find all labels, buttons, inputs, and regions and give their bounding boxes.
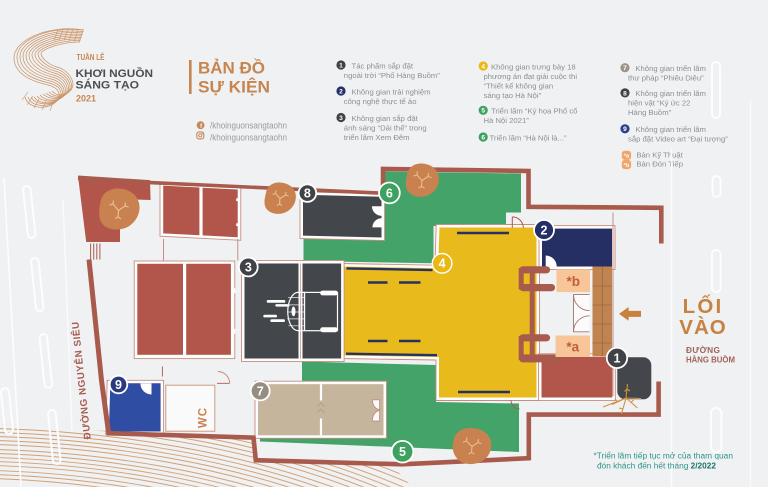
svg-text:*b: *b xyxy=(624,163,630,169)
svg-text:đón khách đến hết tháng 2/2022: đón khách đến hết tháng 2/2022 xyxy=(597,462,717,471)
svg-text:Bàn Kỹ Thuật: Bàn Kỹ Thuật xyxy=(636,150,683,159)
svg-text:VÀO: VÀO xyxy=(679,316,726,339)
svg-text:SỰ KIỆN: SỰ KIỆN xyxy=(198,78,270,97)
svg-text:Không gian sắp đặt: Không gian sắp đặt xyxy=(352,114,419,123)
svg-text:3: 3 xyxy=(339,115,343,122)
svg-text:Không gian triển lãm: Không gian triển lãm xyxy=(635,125,706,134)
svg-text:4: 4 xyxy=(481,63,485,70)
svg-text:1: 1 xyxy=(614,351,621,365)
svg-text:8: 8 xyxy=(304,187,311,201)
svg-text:Triển lãm “Hà Nội là...”: Triển lãm “Hà Nội là...” xyxy=(490,133,567,142)
svg-text:“Thiết kế không gian: “Thiết kế không gian xyxy=(484,81,554,90)
svg-text:sáng tạo Hà Nội”: sáng tạo Hà Nội” xyxy=(484,91,542,100)
svg-text:2: 2 xyxy=(541,224,548,238)
svg-text:2: 2 xyxy=(339,88,343,95)
svg-text:6: 6 xyxy=(481,134,485,141)
svg-text:HÀNG BUỒM: HÀNG BUỒM xyxy=(686,354,735,365)
svg-text:*a: *a xyxy=(566,340,579,355)
svg-text:6: 6 xyxy=(386,186,393,200)
svg-text:/khoinguonsangtaohn: /khoinguonsangtaohn xyxy=(210,132,287,142)
svg-text:Không gian triển lãm: Không gian triển lãm xyxy=(635,64,706,73)
svg-text:ngoài trời “Phố Hàng Buồm”: ngoài trời “Phố Hàng Buồm” xyxy=(344,71,440,80)
svg-text:KHƠI NGUỒN: KHƠI NGUỒN xyxy=(76,67,154,80)
svg-text:Hà Nội 2021”: Hà Nội 2021” xyxy=(484,116,530,125)
svg-text:Không gian trưng bày 18: Không gian trưng bày 18 xyxy=(491,62,576,71)
svg-text:7: 7 xyxy=(623,65,627,72)
svg-text:Không gian triển lãm: Không gian triển lãm xyxy=(635,89,706,98)
svg-text:Không gian trải nghiệm: Không gian trải nghiệm xyxy=(352,87,431,96)
svg-text:7: 7 xyxy=(257,384,264,398)
svg-text:*Triển lãm tiếp tục mở của tha: *Triển lãm tiếp tục mở của tham quan xyxy=(594,452,734,461)
svg-text:công nghệ thực tế ảo: công nghệ thực tế ảo xyxy=(344,97,417,106)
svg-text:WC: WC xyxy=(198,407,210,428)
svg-text:ánh sáng “Dải thể” trong: ánh sáng “Dải thể” trong xyxy=(344,123,427,132)
svg-text:Hàng Buồm”: Hàng Buồm” xyxy=(628,108,672,117)
svg-text:Tác phẩm sắp đặt: Tác phẩm sắp đặt xyxy=(352,61,414,70)
svg-text:5: 5 xyxy=(481,108,485,115)
svg-text:/khoinguonsangtaohn: /khoinguonsangtaohn xyxy=(210,120,287,130)
svg-text:3: 3 xyxy=(245,261,252,275)
svg-text:SÁNG TẠO: SÁNG TẠO xyxy=(76,79,140,92)
svg-text:triển lãm Xem Đêm: triển lãm Xem Đêm xyxy=(344,133,410,142)
svg-text:*a: *a xyxy=(624,154,630,160)
svg-text:9: 9 xyxy=(623,126,627,133)
svg-text:sắp đặt Video art “Đại tượng”: sắp đặt Video art “Đại tượng” xyxy=(628,135,728,144)
svg-text:1: 1 xyxy=(339,62,343,69)
svg-text:*b: *b xyxy=(566,274,580,289)
svg-text:8: 8 xyxy=(623,90,627,97)
svg-text:BẢN ĐỒ: BẢN ĐỒ xyxy=(198,59,265,78)
svg-text:2021: 2021 xyxy=(76,94,96,104)
svg-text:phương án đạt giải cuộc thi: phương án đạt giải cuộc thi xyxy=(484,72,578,81)
svg-text:Triển lãm “Ký họa Phố cổ: Triển lãm “Ký họa Phố cổ xyxy=(491,107,577,116)
svg-text:ĐƯỜNG: ĐƯỜNG xyxy=(686,344,720,355)
svg-text:Bàn Đón Tiếp: Bàn Đón Tiếp xyxy=(636,160,683,169)
svg-text:9: 9 xyxy=(115,378,122,392)
svg-text:LỐI: LỐI xyxy=(683,294,724,318)
svg-text:4: 4 xyxy=(439,257,446,271)
svg-text:thư pháp “Phiêu Diêu”: thư pháp “Phiêu Diêu” xyxy=(628,73,704,82)
svg-text:5: 5 xyxy=(399,445,406,459)
svg-text:TUẦN LỄ: TUẦN LỄ xyxy=(77,52,106,62)
svg-text:hiện vật “Ký ức 22: hiện vật “Ký ức 22 xyxy=(628,99,690,108)
